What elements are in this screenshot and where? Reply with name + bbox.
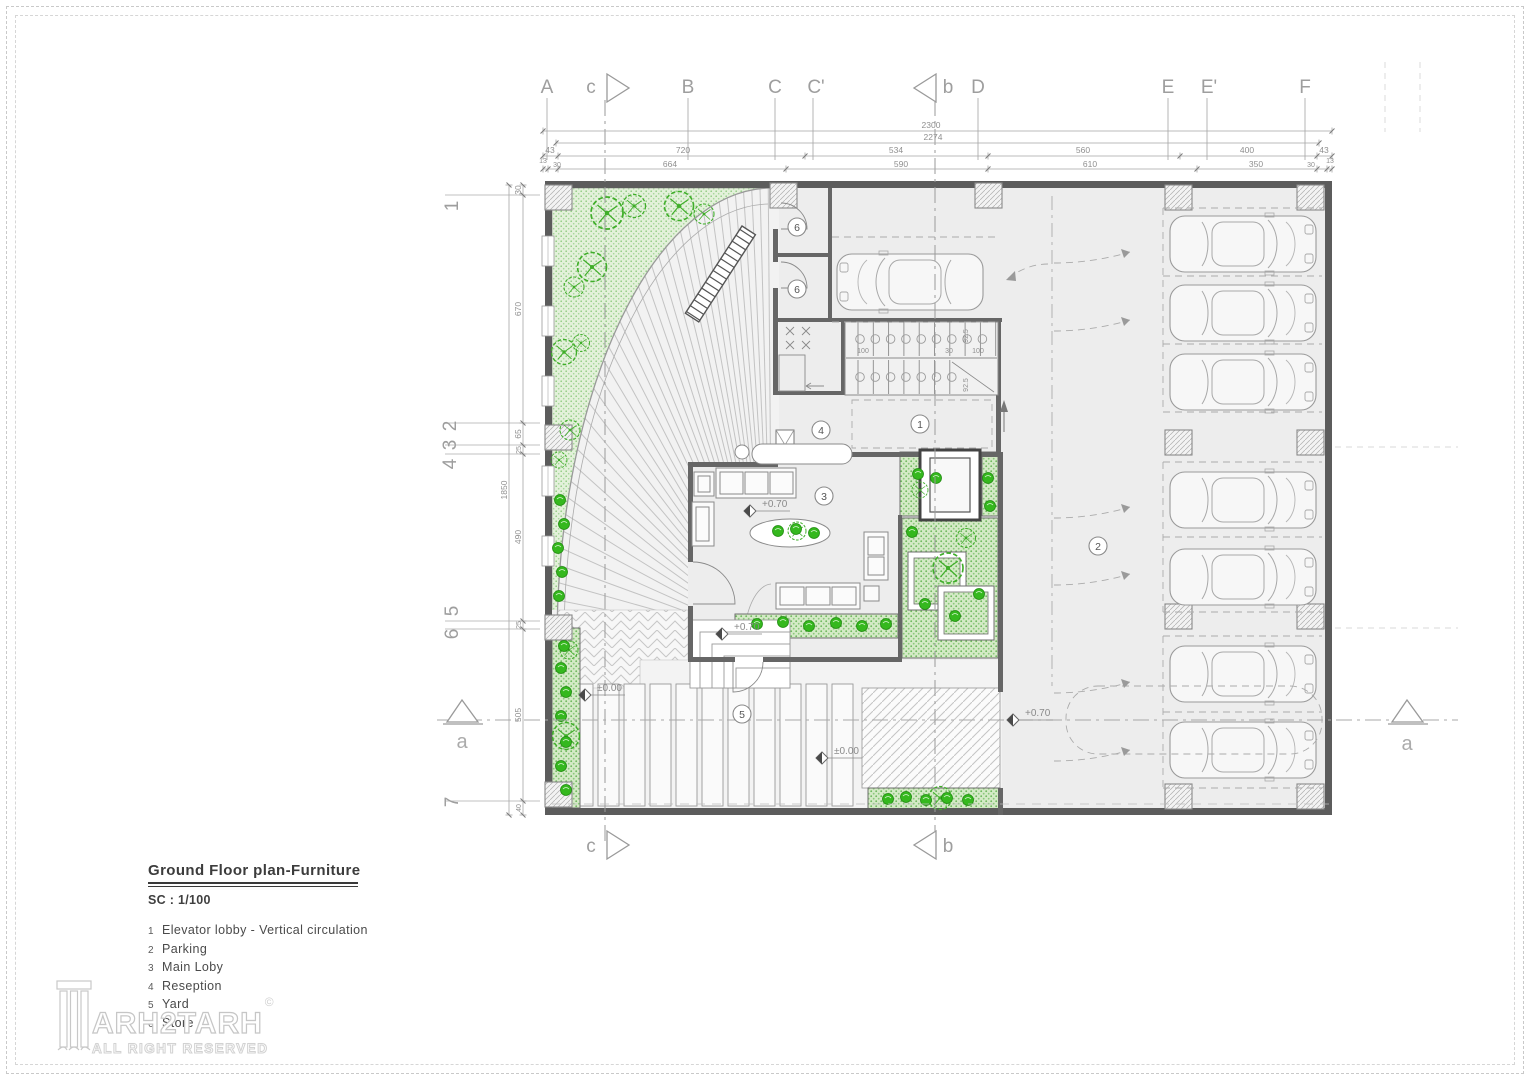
drawing-sheet: A c B C C' b D E E' F c b 1 2 3 4 5 6 7 …	[0, 0, 1530, 1080]
grid-label-4: 4	[440, 458, 461, 469]
car	[1170, 469, 1316, 531]
bush	[985, 501, 996, 512]
tag-main-lobby: 3	[821, 491, 827, 503]
tag-elevator-lobby: 1	[917, 419, 923, 431]
tag-store-1: 6	[794, 222, 800, 234]
drawing-scale: SC : 1/100	[148, 893, 408, 907]
dim-r4-1: 30	[553, 162, 561, 169]
dim-r3-1: 720	[676, 145, 690, 155]
dim-stair-4: 92.5	[963, 378, 970, 392]
dim-stair-0: 100	[857, 348, 869, 355]
legend-num: 3	[148, 963, 162, 974]
level-parking: +0.70	[1025, 708, 1051, 719]
bush	[556, 663, 567, 674]
grid-label-6: 6	[442, 629, 463, 640]
dim-r4-7: 13	[1326, 158, 1334, 165]
dim-stair-2: 100	[972, 348, 984, 355]
section-label-a-left: a	[456, 731, 468, 753]
tag-yard: 5	[739, 709, 745, 721]
dim-r3-2: 534	[889, 145, 903, 155]
bush	[554, 591, 565, 602]
logo-column-icon	[56, 980, 92, 1056]
dim-r4-4: 610	[1083, 159, 1097, 169]
grid-label-E2: E'	[1201, 77, 1217, 98]
yard-deck	[572, 684, 853, 806]
bush	[559, 519, 570, 530]
grid-label-b: b	[943, 77, 954, 98]
car	[1170, 213, 1316, 275]
grid-label-D: D	[971, 77, 985, 98]
dim-r3-3: 560	[1076, 145, 1090, 155]
bush	[974, 589, 985, 600]
dim-l-5: 25	[516, 621, 523, 629]
legend-label: Parking	[162, 942, 207, 956]
grid-label-7: 7	[442, 797, 463, 808]
grid-label-2: 2	[440, 421, 461, 432]
dim-l-7: 40	[516, 804, 523, 812]
dim-r3-4: 400	[1240, 145, 1254, 155]
bush	[857, 621, 868, 632]
dim-r4-5: 350	[1249, 159, 1263, 169]
dim-l-1: 670	[513, 302, 523, 316]
bush	[831, 618, 842, 629]
dim-l-2: 65	[513, 429, 523, 439]
legend-item: 3 Main Loby	[148, 960, 408, 974]
bush	[809, 528, 820, 539]
car-garage	[837, 251, 983, 313]
bush	[942, 793, 953, 804]
level-yard-a: ±0.00	[597, 683, 622, 694]
bush	[557, 567, 568, 578]
legend-label: Main Loby	[162, 960, 223, 974]
legend-item: 1 Elevator lobby - Vertical circulation	[148, 923, 408, 937]
legend-num: 2	[148, 945, 162, 956]
legend-num: 1	[148, 926, 162, 937]
dim-l-0: 30	[513, 185, 523, 195]
legend-label: Elevator lobby - Vertical circulation	[162, 923, 368, 937]
dim-total: 2300	[922, 120, 941, 130]
section-label-a-right: a	[1401, 733, 1413, 755]
logo-brand: ARH2TARH	[92, 1007, 263, 1040]
car	[1170, 643, 1316, 705]
grid-label-C2: C'	[807, 77, 824, 98]
car	[1170, 351, 1316, 413]
title-rule-2	[148, 886, 358, 887]
bush	[561, 687, 572, 698]
dim-l-3: 25	[516, 446, 523, 454]
bush	[907, 527, 918, 538]
bush	[778, 617, 789, 628]
grid-label-b-bottom: b	[943, 836, 954, 857]
bush	[950, 611, 961, 622]
bush	[881, 619, 892, 630]
dim-r4-2: 664	[663, 159, 677, 169]
tag-store-2: 6	[794, 284, 800, 296]
bush	[561, 737, 572, 748]
grid-label-B: B	[682, 77, 695, 98]
bush	[804, 621, 815, 632]
grid-label-C: C	[768, 77, 782, 98]
grid-label-E: E	[1162, 77, 1175, 98]
dim-r3-5: 43	[1319, 145, 1329, 155]
dim-l-6: 505	[513, 708, 523, 722]
bush	[773, 526, 784, 537]
bush	[883, 794, 894, 805]
bush	[561, 785, 572, 796]
dim-r4-6: 30	[1307, 162, 1315, 169]
grid-label-3: 3	[440, 440, 461, 451]
car	[1170, 719, 1316, 781]
grid-label-F: F	[1299, 77, 1311, 98]
title-rule	[148, 882, 358, 884]
bush	[931, 473, 942, 484]
bush	[555, 495, 566, 506]
drawing-title: Ground Floor plan-Furniture	[148, 862, 408, 879]
bush	[901, 792, 912, 803]
legend-item: 2 Parking	[148, 942, 408, 956]
bush	[553, 543, 564, 554]
dim-r4-3: 590	[894, 159, 908, 169]
car	[1170, 282, 1316, 344]
tag-parking: 2	[1095, 541, 1101, 553]
grid-label-c-bottom: c	[586, 836, 596, 857]
dim-stair-1: 30	[945, 348, 953, 355]
elevator-shaft	[920, 450, 980, 520]
dim-inner-total: 2274	[924, 132, 943, 142]
grid-label-c: c	[586, 77, 596, 98]
bush	[913, 469, 924, 480]
car	[1170, 546, 1316, 608]
tag-reception: 4	[818, 425, 824, 437]
level-yard-b: ±0.00	[834, 746, 859, 757]
level-lobby: +0.70	[762, 499, 788, 510]
dim-r3-0: 43	[545, 145, 555, 155]
dim-left-total: 1850	[499, 480, 509, 499]
bush	[556, 761, 567, 772]
dim-stair-3: 92.5	[963, 329, 970, 343]
logo: ARH2TARH© ALL RIGHT RESERVED	[56, 980, 316, 1056]
bush	[983, 473, 994, 484]
bush	[920, 599, 931, 610]
vehicle-ramp	[862, 688, 1000, 788]
bush	[791, 524, 802, 535]
level-terrace: +0.70	[734, 622, 760, 633]
main-staircase	[845, 322, 998, 395]
grid-label-A: A	[541, 77, 554, 98]
grid-label-1: 1	[442, 201, 463, 212]
logo-copyright: ©	[265, 995, 274, 1009]
bush	[559, 641, 570, 652]
grid-label-5: 5	[442, 606, 463, 617]
dim-r4-0: 13	[539, 158, 547, 165]
dim-l-4: 490	[513, 530, 523, 544]
logo-tagline: ALL RIGHT RESERVED	[92, 1041, 272, 1056]
